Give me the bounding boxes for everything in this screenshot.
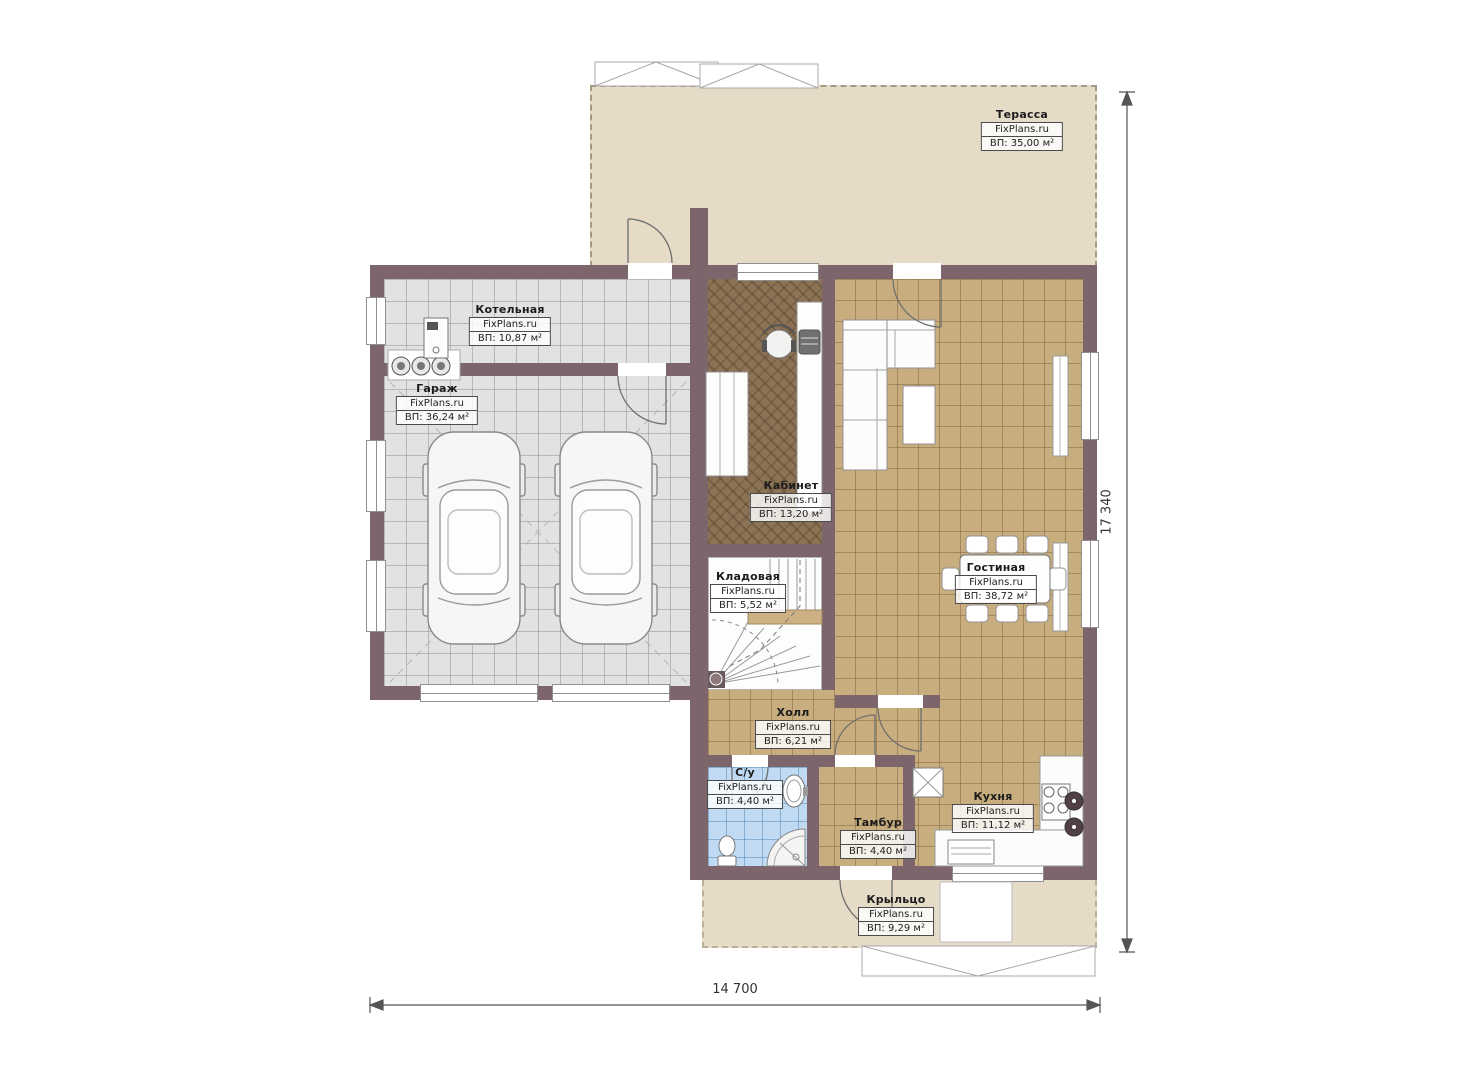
room-label-living: Гостиная FixPlans.ru ВП: 38,72 м² — [955, 561, 1037, 604]
wall-segment — [807, 755, 819, 866]
room-area: ВП: 11,12 м² — [953, 819, 1033, 832]
room-name: Крыльцо — [858, 893, 934, 906]
room-name: Котельная — [469, 303, 551, 316]
room-name: Тамбур — [840, 816, 916, 829]
room-info-box: FixPlans.ru ВП: 9,29 м² — [858, 907, 934, 936]
room-info-box: FixPlans.ru ВП: 5,52 м² — [710, 584, 786, 613]
room-name: Гараж — [396, 382, 478, 395]
room-brand: FixPlans.ru — [756, 721, 830, 735]
room-brand: FixPlans.ru — [397, 397, 477, 411]
room-name: Терасса — [981, 108, 1063, 121]
wall-segment — [370, 265, 1097, 279]
room-info-box: FixPlans.ru ВП: 6,21 м² — [755, 720, 831, 749]
door-opening — [840, 866, 892, 880]
room-label-bathroom: С/у FixPlans.ru ВП: 4,40 м² — [707, 766, 783, 809]
room-label-terrace: Терасса FixPlans.ru ВП: 35,00 м² — [981, 108, 1063, 151]
room-name: С/у — [707, 766, 783, 779]
room-info-box: FixPlans.ru ВП: 38,72 м² — [955, 575, 1037, 604]
room-name: Гостиная — [955, 561, 1037, 574]
room-brand: FixPlans.ru — [711, 585, 785, 599]
wall-segment — [690, 265, 708, 880]
room-brand: FixPlans.ru — [859, 908, 933, 922]
room-info-box: FixPlans.ru ВП: 4,40 м² — [840, 830, 916, 859]
room-area: ВП: 38,72 м² — [956, 590, 1036, 603]
room-area: ВП: 36,24 м² — [397, 411, 477, 424]
room-label-boiler: Котельная FixPlans.ru ВП: 10,87 м² — [469, 303, 551, 346]
room-name: Кабинет — [750, 479, 832, 492]
garage-door-symbol — [552, 684, 670, 702]
room-area: ВП: 4,40 м² — [841, 845, 915, 858]
room-name: Холл — [755, 706, 831, 719]
room-label-hall: Холл FixPlans.ru ВП: 6,21 м² — [755, 706, 831, 749]
room-brand: FixPlans.ru — [751, 494, 831, 508]
room-name: Кухня — [952, 790, 1034, 803]
room-info-box: FixPlans.ru ВП: 36,24 м² — [396, 396, 478, 425]
wall-segment — [822, 544, 835, 690]
floor-plan: Терасса FixPlans.ru ВП: 35,00 м² Котельн… — [0, 0, 1474, 1080]
room-area: ВП: 5,52 м² — [711, 599, 785, 612]
room-name: Кладовая — [710, 570, 786, 583]
room-brand: FixPlans.ru — [982, 123, 1062, 137]
door-opening — [628, 263, 672, 279]
door-opening — [618, 363, 666, 376]
window-symbol — [366, 297, 386, 345]
room-brand: FixPlans.ru — [956, 576, 1036, 590]
door-opening — [878, 695, 923, 708]
dimension-width-label: 14 700 — [712, 982, 758, 997]
wall-segment — [708, 544, 835, 557]
room-info-box: FixPlans.ru ВП: 4,40 м² — [707, 780, 783, 809]
room-brand: FixPlans.ru — [841, 831, 915, 845]
room-label-garage: Гараж FixPlans.ru ВП: 36,24 м² — [396, 382, 478, 425]
room-brand: FixPlans.ru — [708, 781, 782, 795]
room-label-porch: Крыльцо FixPlans.ru ВП: 9,29 м² — [858, 893, 934, 936]
room-area: ВП: 9,29 м² — [859, 922, 933, 935]
dimension-height-label: 17 340 — [1100, 489, 1115, 535]
room-brand: FixPlans.ru — [470, 318, 550, 332]
room-area: ВП: 6,21 м² — [756, 735, 830, 748]
door-opening — [835, 755, 875, 767]
room-area: ВП: 10,87 м² — [470, 332, 550, 345]
window-symbol — [1081, 352, 1099, 440]
garage-door-symbol — [420, 684, 538, 702]
window-symbol — [737, 263, 819, 281]
room-info-box: FixPlans.ru ВП: 11,12 м² — [952, 804, 1034, 833]
room-label-vestibule: Тамбур FixPlans.ru ВП: 4,40 м² — [840, 816, 916, 859]
room-area: ВП: 4,40 м² — [708, 795, 782, 808]
room-label-storage: Кладовая FixPlans.ru ВП: 5,52 м² — [710, 570, 786, 613]
room-brand: FixPlans.ru — [953, 805, 1033, 819]
room-label-office: Кабинет FixPlans.ru ВП: 13,20 м² — [750, 479, 832, 522]
window-symbol — [952, 864, 1044, 882]
window-symbol — [366, 560, 386, 632]
window-symbol — [1081, 540, 1099, 628]
room-info-box: FixPlans.ru ВП: 10,87 м² — [469, 317, 551, 346]
room-label-kitchen: Кухня FixPlans.ru ВП: 11,12 м² — [952, 790, 1034, 833]
door-opening — [893, 263, 941, 279]
room-area: ВП: 35,00 м² — [982, 137, 1062, 150]
room-area: ВП: 13,20 м² — [751, 508, 831, 521]
room-info-box: FixPlans.ru ВП: 35,00 м² — [981, 122, 1063, 151]
window-symbol — [366, 440, 386, 512]
room-info-box: FixPlans.ru ВП: 13,20 м² — [750, 493, 832, 522]
